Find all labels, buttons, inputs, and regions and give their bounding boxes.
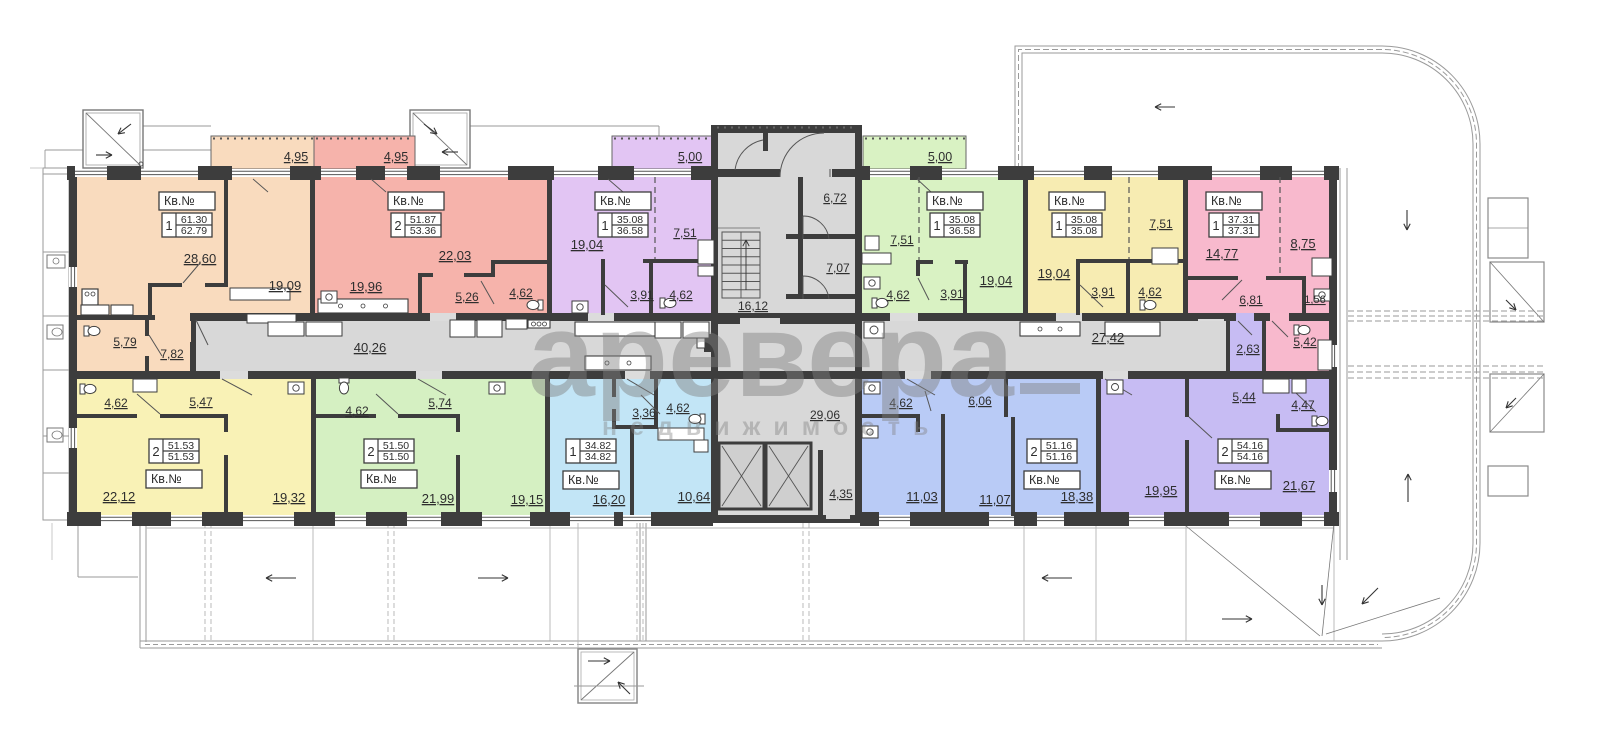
svg-text:28,60: 28,60 [184, 251, 217, 266]
svg-text:Кв.№: Кв.№ [1029, 473, 1060, 487]
svg-text:недвижимость: недвижимость [602, 413, 941, 441]
svg-text:51.53: 51.53 [168, 451, 194, 463]
svg-text:1: 1 [1055, 218, 1062, 233]
svg-text:5,42: 5,42 [1293, 335, 1317, 349]
svg-text:1,56: 1,56 [1304, 294, 1325, 306]
svg-text:2: 2 [1030, 444, 1037, 459]
svg-text:19,04: 19,04 [571, 237, 604, 252]
svg-text:11,03: 11,03 [906, 489, 938, 504]
svg-text:5,00: 5,00 [678, 150, 702, 164]
svg-text:4,95: 4,95 [384, 150, 408, 164]
svg-text:3,91: 3,91 [1091, 285, 1115, 299]
svg-text:1: 1 [933, 218, 940, 233]
svg-text:7,51: 7,51 [890, 233, 914, 247]
svg-text:14,77: 14,77 [1206, 246, 1239, 261]
svg-text:Кв.№: Кв.№ [932, 194, 963, 208]
svg-text:4,62: 4,62 [1138, 285, 1162, 299]
svg-text:10,64: 10,64 [678, 489, 711, 504]
svg-text:7,07: 7,07 [826, 261, 850, 275]
svg-text:5,47: 5,47 [189, 395, 213, 409]
svg-text:4,95: 4,95 [284, 150, 308, 164]
svg-text:8,75: 8,75 [1290, 236, 1315, 251]
svg-text:1: 1 [1212, 218, 1219, 233]
svg-text:19,09: 19,09 [269, 278, 302, 293]
svg-text:Кв.№: Кв.№ [393, 194, 424, 208]
svg-text:1: 1 [601, 218, 608, 233]
svg-text:11,07: 11,07 [979, 492, 1011, 507]
svg-text:5,00: 5,00 [928, 150, 952, 164]
svg-text:4,62: 4,62 [104, 396, 128, 410]
svg-text:19,04: 19,04 [1038, 266, 1071, 281]
svg-text:7,51: 7,51 [673, 226, 697, 240]
svg-text:5,79: 5,79 [113, 335, 137, 349]
svg-text:36.58: 36.58 [617, 225, 643, 237]
svg-text:6,81: 6,81 [1239, 293, 1263, 307]
svg-text:2,63: 2,63 [1236, 342, 1260, 356]
svg-text:5,26: 5,26 [455, 290, 479, 304]
svg-text:Кв.№: Кв.№ [568, 473, 599, 487]
svg-text:2: 2 [152, 444, 159, 459]
svg-text:Кв.№: Кв.№ [366, 472, 397, 486]
svg-text:Кв.№: Кв.№ [151, 472, 182, 486]
svg-text:Кв.№: Кв.№ [164, 194, 195, 208]
svg-text:7,82: 7,82 [160, 347, 184, 361]
svg-text:53.36: 53.36 [410, 225, 436, 237]
svg-text:54.16: 54.16 [1237, 451, 1263, 463]
svg-text:19,04: 19,04 [980, 273, 1013, 288]
svg-text:6,72: 6,72 [823, 191, 847, 205]
svg-text:36.58: 36.58 [949, 225, 975, 237]
svg-text:21,67: 21,67 [1283, 478, 1316, 493]
svg-text:2: 2 [367, 444, 374, 459]
svg-text:62.79: 62.79 [181, 225, 207, 237]
svg-text:5,74: 5,74 [428, 396, 452, 410]
svg-text:37.31: 37.31 [1228, 225, 1254, 237]
svg-text:1: 1 [569, 444, 576, 459]
svg-text:Кв.№: Кв.№ [1211, 194, 1242, 208]
svg-text:Кв.№: Кв.№ [600, 194, 631, 208]
svg-text:Кв.№: Кв.№ [1220, 473, 1251, 487]
svg-text:Кв.№: Кв.№ [1054, 194, 1085, 208]
svg-text:51.16: 51.16 [1046, 451, 1072, 463]
svg-text:22,12: 22,12 [103, 489, 136, 504]
svg-text:51.50: 51.50 [383, 451, 409, 463]
svg-text:19,96: 19,96 [350, 279, 383, 294]
svg-text:18,38: 18,38 [1061, 489, 1094, 504]
svg-text:1: 1 [165, 218, 172, 233]
svg-text:16,20: 16,20 [593, 492, 626, 507]
svg-text:2: 2 [394, 218, 401, 233]
svg-text:21,99: 21,99 [422, 491, 455, 506]
svg-text:27,42: 27,42 [1092, 330, 1125, 345]
svg-text:35.08: 35.08 [1071, 225, 1097, 237]
svg-text:19,95: 19,95 [1145, 483, 1178, 498]
svg-text:аревера: аревера [528, 288, 1015, 422]
svg-text:4,47: 4,47 [1291, 398, 1315, 412]
svg-text:4,35: 4,35 [829, 487, 853, 501]
svg-text:7,51: 7,51 [1149, 217, 1173, 231]
svg-text:22,03: 22,03 [439, 248, 472, 263]
svg-text:40,26: 40,26 [354, 340, 387, 355]
svg-text:19,15: 19,15 [511, 492, 544, 507]
svg-text:19,32: 19,32 [273, 490, 306, 505]
svg-text:4,62: 4,62 [345, 404, 369, 418]
svg-text:2: 2 [1221, 444, 1228, 459]
svg-text:34.82: 34.82 [585, 451, 611, 463]
svg-text:5,44: 5,44 [1232, 390, 1256, 404]
